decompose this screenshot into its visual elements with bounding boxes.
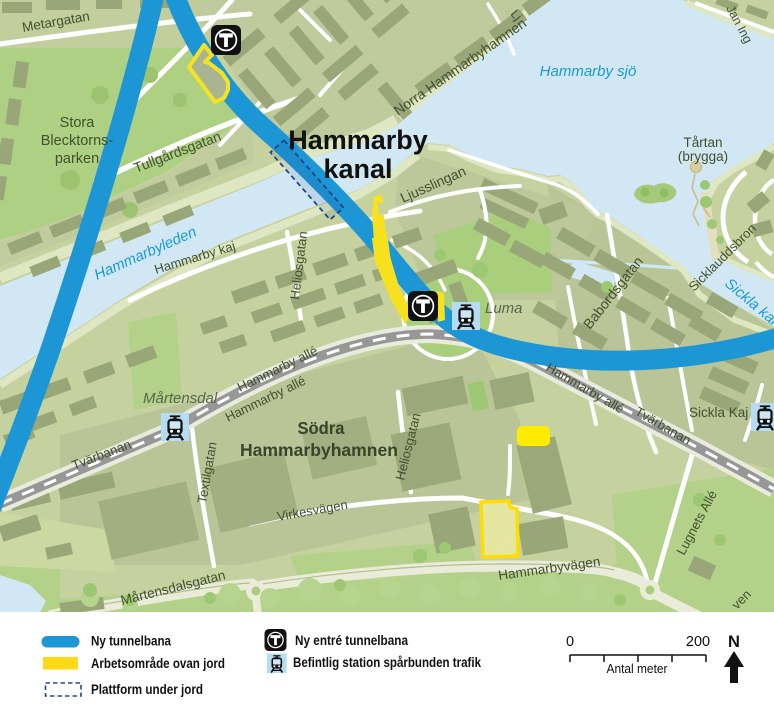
svg-text:Tårtan: Tårtan	[683, 135, 722, 150]
svg-text:Sickla Kaj: Sickla Kaj	[689, 405, 748, 420]
svg-text:Hammarby: Hammarby	[288, 125, 428, 155]
svg-text:Antal meter: Antal meter	[607, 661, 669, 676]
svg-text:Södra: Södra	[298, 418, 345, 438]
svg-text:Befintlig station spårbunden t: Befintlig station spårbunden trafik	[293, 655, 481, 670]
svg-text:parken: parken	[55, 151, 99, 167]
svg-text:200: 200	[686, 634, 710, 650]
svg-text:Ny entré tunnelbana: Ny entré tunnelbana	[295, 633, 408, 648]
svg-text:0: 0	[566, 634, 574, 650]
svg-text:Ny tunnelbana: Ny tunnelbana	[91, 634, 171, 649]
svg-text:Hammarbyhamnen: Hammarbyhamnen	[240, 440, 398, 460]
svg-text:Stora: Stora	[60, 115, 96, 131]
svg-text:Hammarby sjö: Hammarby sjö	[540, 63, 637, 80]
svg-text:N: N	[728, 633, 740, 651]
svg-text:Blecktorns-: Blecktorns-	[41, 133, 114, 149]
svg-text:Arbetsområde ovan jord: Arbetsområde ovan jord	[91, 656, 225, 671]
svg-text:Luma: Luma	[485, 300, 523, 317]
svg-text:Plattform under jord: Plattform under jord	[91, 682, 203, 697]
svg-text:Mårtensdal: Mårtensdal	[143, 390, 218, 407]
svg-text:(brygga): (brygga)	[678, 149, 728, 164]
svg-text:kanal: kanal	[323, 154, 392, 184]
